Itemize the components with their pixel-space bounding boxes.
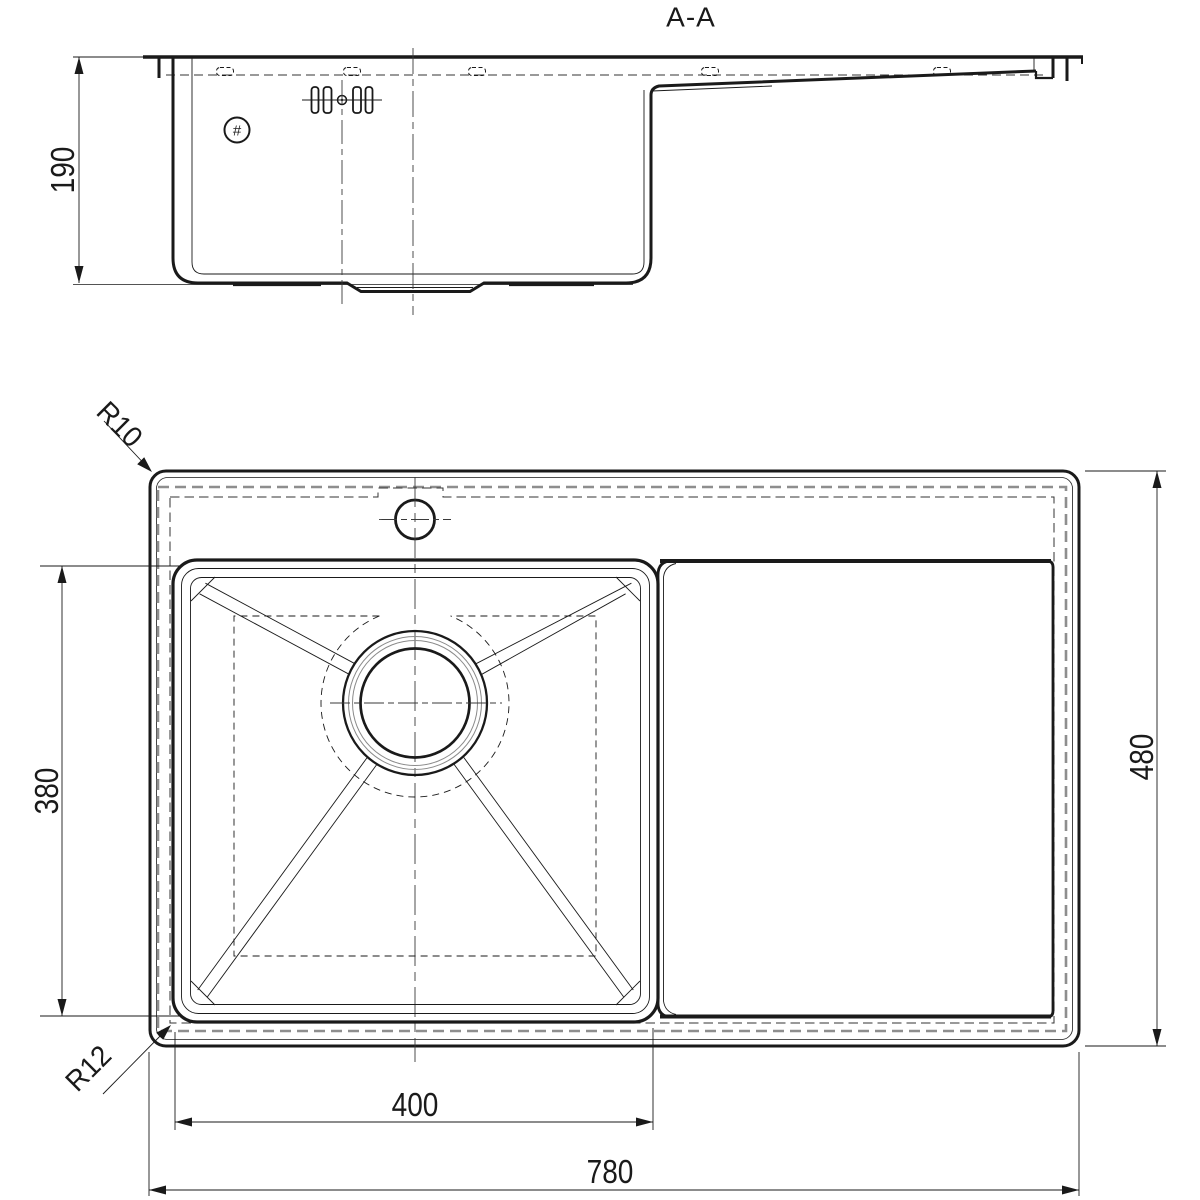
hole-marker-symbol: # bbox=[225, 118, 250, 143]
drainboard bbox=[658, 561, 1053, 1017]
dim-190-arrow-down bbox=[75, 266, 84, 283]
radius-callout-r12: R12 bbox=[59, 1025, 171, 1097]
section-left-wall-inner-line bbox=[192, 58, 204, 274]
plan-dimensions: R10 R12 380 480 bbox=[29, 395, 1166, 1196]
dim-bowl-width-380: 380 bbox=[29, 566, 183, 1016]
technical-drawing-page: A-A bbox=[0, 0, 1200, 1200]
bowl-corner-chamfers bbox=[191, 577, 640, 1005]
bowl-rim-line-2 bbox=[191, 578, 641, 1005]
bowl-crease-lines bbox=[198, 583, 634, 997]
dim-depth-190: 190 bbox=[45, 57, 146, 283]
section-bowl-right-wall-and-drainboard bbox=[626, 71, 1036, 283]
bowl-rim-line-1 bbox=[182, 569, 650, 1014]
radius-callout-r10: R10 bbox=[91, 395, 152, 472]
dim-overall-length-780: 780 bbox=[149, 1052, 1079, 1196]
section-title: A-A bbox=[666, 2, 716, 33]
r10-arrowhead bbox=[137, 457, 152, 472]
dim-480-label: 480 bbox=[1124, 734, 1161, 781]
dim-380-label: 380 bbox=[29, 768, 66, 815]
hole-marker-glyph: # bbox=[233, 123, 242, 140]
dim-overall-width-480: 480 bbox=[1085, 471, 1166, 1046]
sink-outline bbox=[150, 471, 1079, 1046]
dim-190-arrow-up bbox=[75, 57, 84, 74]
section-bowl-left-wall bbox=[173, 57, 198, 283]
plan-view bbox=[150, 471, 1079, 1062]
section-mounting-clips bbox=[217, 68, 951, 76]
dim-bowl-length-400: 400 bbox=[175, 1028, 653, 1130]
dim-400-label: 400 bbox=[392, 1087, 439, 1124]
dim-780-label: 780 bbox=[587, 1154, 634, 1191]
r10-label: R10 bbox=[91, 395, 150, 454]
bowl-outline bbox=[173, 560, 658, 1022]
sink-technical-drawing: A-A bbox=[0, 0, 1200, 1200]
section-right-wall-inner-line bbox=[632, 90, 644, 274]
dim-190-label: 190 bbox=[45, 147, 82, 194]
drainboard-lip-line bbox=[664, 564, 677, 1015]
section-view: A-A bbox=[45, 2, 1083, 316]
